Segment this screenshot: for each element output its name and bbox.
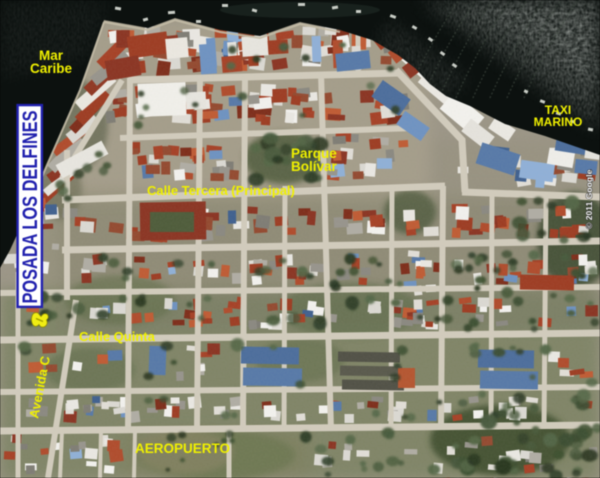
svg-text:Calle Tercera (Principal): Calle Tercera (Principal)	[147, 183, 295, 198]
svg-text:AEROPUERTO: AEROPUERTO	[135, 441, 230, 456]
svg-text:Calle Quinta: Calle Quinta	[79, 329, 156, 344]
svg-text:© 2011 Google: © 2011 Google	[584, 169, 594, 229]
svg-text:POSADA LOS DELFINES: POSADA LOS DELFINES	[18, 111, 42, 304]
svg-text:MARINO: MARINO	[534, 115, 583, 129]
svg-text:Caribe: Caribe	[30, 61, 73, 76]
svg-text:Bolívar: Bolívar	[291, 159, 338, 174]
